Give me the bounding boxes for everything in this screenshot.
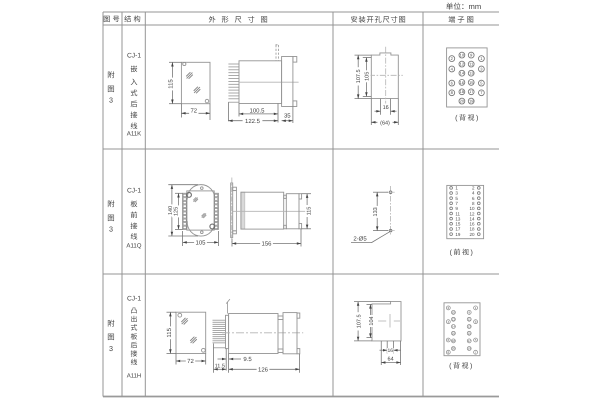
svg-text:图: 图: [107, 84, 114, 95]
svg-text:入: 入: [130, 78, 137, 88]
svg-text:105: 105: [195, 237, 206, 246]
svg-text:107.5: 107.5: [354, 69, 362, 83]
svg-text:12: 12: [452, 317, 456, 321]
svg-text:结构: 结构: [124, 15, 143, 25]
svg-text:20: 20: [452, 347, 456, 351]
svg-text:100.5: 100.5: [249, 105, 265, 114]
svg-text:16: 16: [460, 80, 465, 86]
svg-text:105: 105: [362, 72, 370, 81]
svg-text:16: 16: [383, 103, 389, 111]
svg-text:10: 10: [460, 53, 465, 59]
svg-text:20: 20: [460, 99, 465, 105]
svg-text:125: 125: [171, 207, 179, 216]
svg-text:(64): (64): [380, 118, 390, 126]
svg-text:前: 前: [130, 211, 137, 221]
svg-text:133: 133: [371, 207, 379, 216]
svg-text:9.5: 9.5: [243, 354, 252, 363]
svg-text:64: 64: [388, 354, 394, 362]
svg-text:单位：mm: 单位：mm: [446, 1, 481, 12]
svg-text:126: 126: [258, 364, 269, 373]
svg-text:3: 3: [109, 344, 113, 354]
svg-text:图号: 图号: [103, 15, 122, 25]
svg-text:18: 18: [452, 339, 456, 343]
svg-text:20: 20: [469, 232, 475, 238]
svg-text:115: 115: [164, 327, 173, 337]
svg-text:接: 接: [130, 111, 137, 121]
svg-text:图: 图: [107, 332, 114, 343]
svg-text:15: 15: [468, 331, 472, 335]
svg-text:CJ-1: CJ-1: [127, 185, 141, 195]
svg-text:CJ-1: CJ-1: [127, 292, 141, 302]
svg-text:A11Q: A11Q: [126, 241, 141, 250]
svg-text:14: 14: [452, 325, 456, 329]
svg-text:图: 图: [107, 213, 114, 224]
svg-text:嵌: 嵌: [130, 65, 137, 75]
svg-text:后: 后: [130, 100, 137, 110]
svg-text:156: 156: [261, 239, 272, 248]
svg-text:19: 19: [455, 232, 461, 238]
svg-text:19: 19: [468, 347, 472, 351]
svg-text:3: 3: [109, 96, 113, 106]
svg-text:15: 15: [469, 80, 474, 86]
svg-text:线: 线: [131, 356, 138, 366]
svg-text:104: 104: [367, 316, 375, 325]
svg-text:115: 115: [305, 207, 313, 216]
svg-text:122.5: 122.5: [245, 116, 261, 125]
svg-text:115: 115: [166, 79, 175, 89]
svg-text:A11K: A11K: [127, 129, 141, 138]
svg-text:板: 板: [130, 200, 137, 210]
svg-text:CJ-1: CJ-1: [127, 50, 141, 60]
svg-text:19: 19: [469, 99, 474, 105]
svg-text:(背视): (背视): [455, 113, 480, 123]
svg-text:附: 附: [107, 70, 115, 81]
svg-text:10: 10: [452, 311, 456, 315]
svg-text:3: 3: [109, 225, 113, 235]
svg-text:(背视): (背视): [449, 361, 474, 371]
svg-text:16: 16: [452, 331, 456, 335]
svg-text:13: 13: [468, 325, 472, 329]
svg-text:附: 附: [107, 199, 115, 210]
svg-text:72: 72: [187, 356, 194, 365]
svg-text:16: 16: [388, 347, 394, 354]
svg-text:端子图: 端子图: [448, 15, 476, 25]
svg-text:17: 17: [469, 89, 474, 95]
svg-text:14: 14: [460, 71, 465, 77]
svg-text:2-Ø5: 2-Ø5: [353, 234, 367, 243]
svg-text:外形尺寸图: 外形尺寸图: [209, 15, 274, 25]
svg-text:35: 35: [284, 111, 291, 120]
svg-text:(前视): (前视): [450, 247, 475, 257]
svg-text:附: 附: [107, 318, 115, 329]
svg-text:13: 13: [469, 71, 474, 77]
svg-text:11: 11: [468, 317, 471, 321]
svg-text:11.5: 11.5: [215, 361, 225, 369]
svg-text:72: 72: [190, 106, 197, 115]
svg-text:17: 17: [468, 339, 472, 343]
svg-text:A11H: A11H: [127, 371, 142, 380]
svg-text:12: 12: [460, 62, 465, 68]
svg-text:18: 18: [460, 89, 465, 95]
svg-text:式: 式: [130, 89, 137, 99]
svg-text:安装开孔尺寸图: 安装开孔尺寸图: [351, 15, 407, 25]
svg-text:接: 接: [130, 222, 137, 232]
svg-text:107.5: 107.5: [355, 314, 363, 328]
